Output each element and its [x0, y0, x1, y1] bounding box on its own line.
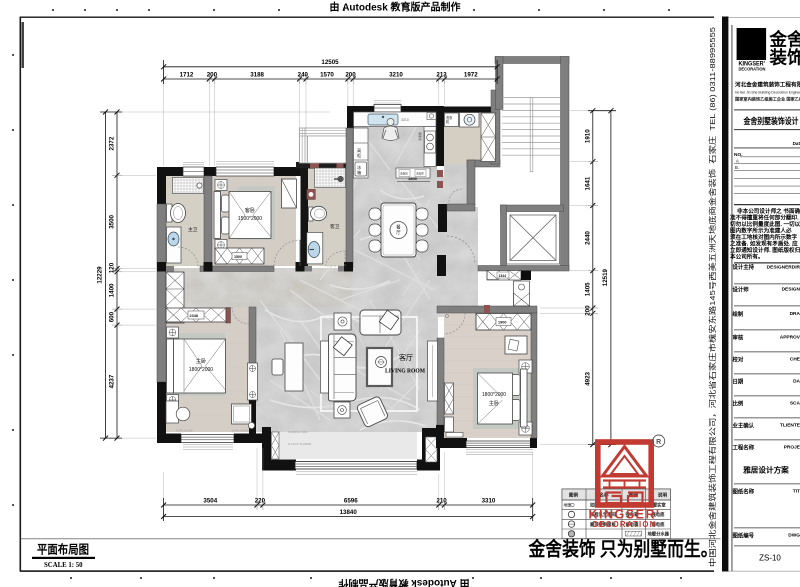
svg-text:4237: 4237	[109, 374, 116, 388]
svg-text:600: 600	[109, 311, 116, 322]
svg-text:主卧: 主卧	[196, 357, 207, 365]
svg-text:200: 200	[207, 72, 218, 79]
svg-text:240: 240	[298, 72, 309, 79]
svg-text:图纸名称: 图纸名称	[733, 488, 755, 496]
svg-text:地暖分水器: 地暖分水器	[648, 531, 670, 538]
svg-text:B.: B.	[735, 165, 739, 170]
svg-text:1800: 1800	[408, 176, 418, 181]
svg-text:N.0000 W 0000: N.0000 W 0000	[288, 430, 308, 434]
svg-text:厅: 厅	[396, 230, 401, 235]
svg-text:LIVING ROOM: LIVING ROOM	[385, 368, 425, 375]
svg-text:地暖: 地暖	[564, 503, 572, 508]
svg-text:2440: 2440	[585, 231, 592, 245]
svg-text:13840: 13840	[340, 509, 358, 516]
svg-text:3500: 3500	[109, 214, 116, 228]
svg-text:6596: 6596	[344, 498, 358, 505]
svg-text:1400: 1400	[109, 283, 116, 297]
svg-text:准不得擅重将任何部分翻印.: 准不得擅重将任何部分翻印.	[730, 214, 799, 222]
svg-text:工程名称: 工程名称	[733, 444, 755, 452]
svg-text:Dat: Dat	[793, 141, 800, 146]
svg-text:DWG: DWG	[788, 533, 800, 539]
svg-text:4923: 4923	[585, 371, 592, 385]
svg-text:金舍: 金舍	[769, 30, 800, 50]
svg-text:1910: 1910	[585, 129, 592, 143]
svg-text:设计主持: 设计主持	[733, 263, 755, 271]
svg-text:中国河北金舍建筑装饰工程有限公司，河北省石家庄市槐安东路14: 中国河北金舍建筑装饰工程有限公司，河北省石家庄市槐安东路145号西美五洲天地底商…	[708, 27, 717, 567]
svg-text:1344: 1344	[499, 274, 507, 278]
svg-text:切勿以比例量度此图. 一切以: 切勿以比例量度此图. 一切以	[730, 220, 800, 228]
svg-text:213: 213	[436, 72, 447, 79]
svg-text:APPROV: APPROV	[780, 335, 800, 341]
svg-text:非本公司设计师之 书面确: 非本公司设计师之 书面确	[737, 207, 800, 215]
svg-text:2372: 2372	[109, 136, 116, 150]
svg-text:审核: 审核	[733, 334, 744, 342]
svg-text:1500*2000: 1500*2000	[238, 216, 262, 222]
svg-text:12505: 12505	[321, 59, 339, 66]
svg-text:1405: 1405	[585, 282, 592, 296]
svg-text:SCA: SCA	[790, 401, 800, 407]
svg-text:消毒柜: 消毒柜	[417, 132, 422, 141]
svg-text:200: 200	[345, 72, 356, 79]
svg-text:DECORATION: DECORATION	[593, 520, 657, 529]
svg-text:金舍别墅装饰设计: 金舍别墅装饰设计	[743, 115, 799, 126]
svg-text:客卫: 客卫	[330, 223, 340, 230]
svg-text:洗碗机: 洗碗机	[400, 172, 408, 176]
svg-text:图例: 图例	[569, 492, 579, 499]
svg-text:1641: 1641	[585, 176, 592, 190]
svg-text:1972: 1972	[464, 72, 478, 79]
svg-text:1800*2000: 1800*2000	[189, 367, 213, 373]
svg-text:图纸编号: 图纸编号	[733, 532, 755, 540]
svg-text:客卧: 客卧	[245, 206, 255, 214]
svg-text:本公司所有。: 本公司所有。	[730, 253, 764, 261]
svg-text:CHE: CHE	[790, 357, 800, 363]
svg-text:主卧: 主卧	[489, 399, 499, 407]
svg-text:1570: 1570	[320, 72, 334, 79]
svg-text:校对: 校对	[733, 356, 744, 364]
svg-text:210: 210	[436, 498, 447, 505]
svg-text:S.FFL+2.900: S.FFL+2.900	[232, 429, 249, 433]
svg-text:设计师: 设计师	[733, 286, 750, 294]
svg-text:3310: 3310	[482, 498, 496, 505]
svg-text:3210: 3210	[389, 72, 403, 79]
svg-text:12519: 12519	[602, 268, 609, 286]
svg-text:平面布局图: 平面布局图	[37, 542, 89, 557]
svg-text:比例: 比例	[733, 400, 744, 408]
svg-text:消毒柜: 消毒柜	[416, 172, 424, 176]
svg-text:He Bei Jin She Building Decora: He Bei Jin She Building Decoration Engin…	[735, 91, 800, 95]
svg-text:须在工地核对图内所示数字: 须在工地核对图内所示数字	[730, 233, 798, 241]
svg-text:1900: 1900	[498, 321, 506, 325]
svg-text:说明: 说明	[658, 492, 668, 499]
svg-text:业主确认: 业主确认	[733, 422, 755, 430]
svg-text:A: A	[736, 159, 739, 164]
svg-text:12229: 12229	[97, 266, 104, 284]
svg-text:装饰: 装饰	[769, 48, 800, 68]
svg-text:DECORATION: DECORATION	[739, 67, 767, 72]
svg-text:2348: 2348	[190, 314, 198, 318]
svg-text:N.FFL+0.000: N.FFL+0.000	[176, 429, 193, 433]
svg-text:DRA: DRA	[790, 311, 800, 317]
svg-text:3210: 3210	[401, 118, 409, 122]
svg-text:由 Autodesk 教育版产品制作: 由 Autodesk 教育版产品制作	[338, 577, 469, 587]
svg-text:图内数字所示为准建人必: 图内数字所示为准建人必	[730, 227, 792, 235]
svg-text:河北金舍建筑装饰工程有限公司: 河北金舍建筑装饰工程有限公司	[735, 81, 800, 89]
svg-text:金舍装饰 只为别墅而生。: 金舍装饰 只为别墅而生。	[528, 538, 718, 561]
svg-text:绘制: 绘制	[733, 310, 744, 318]
svg-text:日期: 日期	[733, 378, 744, 386]
svg-text:200: 200	[585, 305, 592, 316]
svg-text:PROJE: PROJE	[784, 445, 800, 451]
svg-text:箱: 箱	[357, 169, 361, 176]
svg-text:DESIGN: DESIGN	[782, 287, 800, 293]
svg-text:TIT: TIT	[793, 489, 800, 495]
svg-text:1800*2000: 1800*2000	[482, 392, 506, 398]
svg-text:主卫: 主卫	[188, 226, 198, 233]
svg-text:DA: DA	[793, 379, 800, 385]
svg-text:3504: 3504	[203, 498, 217, 505]
svg-text:220: 220	[255, 498, 266, 505]
svg-text:120: 120	[109, 262, 116, 273]
svg-text:国家室内装饰乙级施工企业 国家乙级设计资质: 国家室内装饰乙级施工企业 国家乙级设计资质	[735, 96, 800, 103]
svg-text:1712: 1712	[180, 72, 194, 79]
svg-text:立即通知设计师. 图纸版权归: 立即通知设计师. 图纸版权归	[730, 246, 800, 254]
svg-text:ZS-10: ZS-10	[759, 554, 781, 563]
svg-text:之准备. 如发现有矛盾处. 应: 之准备. 如发现有矛盾处. 应	[730, 240, 798, 248]
svg-text:雅居设计方案: 雅居设计方案	[743, 465, 789, 475]
svg-text:3188: 3188	[250, 72, 264, 79]
svg-text:DESIGNERDIR: DESIGNERDIR	[767, 265, 800, 271]
svg-text:1500: 1500	[234, 255, 242, 259]
svg-text:由 Autodesk 教育版产品制作: 由 Autodesk 教育版产品制作	[329, 1, 460, 14]
svg-text:SCALE 1: 50: SCALE 1: 50	[44, 562, 83, 569]
svg-text:客厅: 客厅	[399, 353, 413, 362]
svg-text:TLIENTE: TLIENTE	[780, 423, 800, 429]
svg-text:N.CCOY W 2000B: N.CCOY W 2000B	[288, 442, 311, 446]
svg-text:柜: 柜	[357, 152, 361, 159]
svg-text:R: R	[656, 439, 661, 446]
